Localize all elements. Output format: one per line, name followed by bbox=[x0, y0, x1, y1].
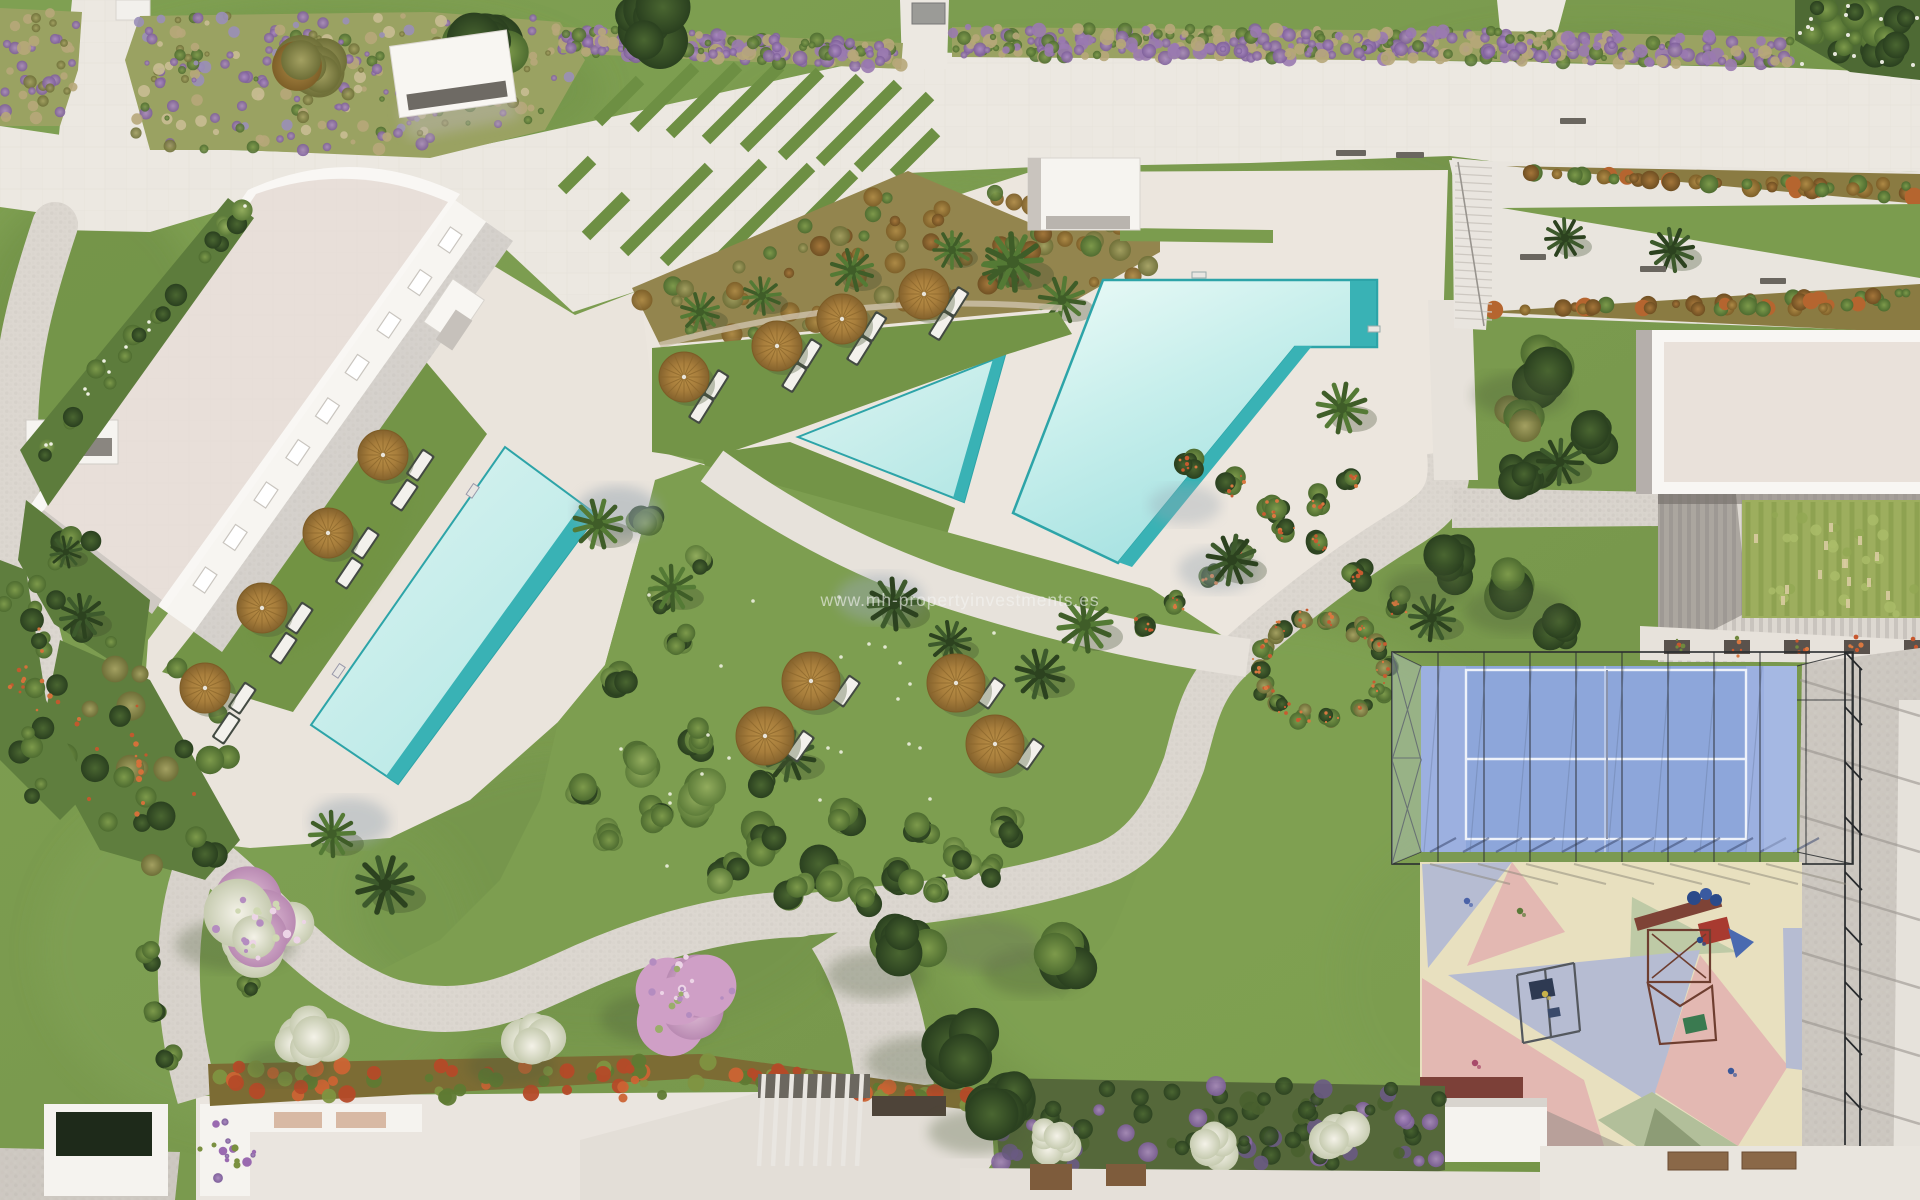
svg-text:www.mh-propertyinvestments.es: www.mh-propertyinvestments.es bbox=[820, 590, 1100, 610]
